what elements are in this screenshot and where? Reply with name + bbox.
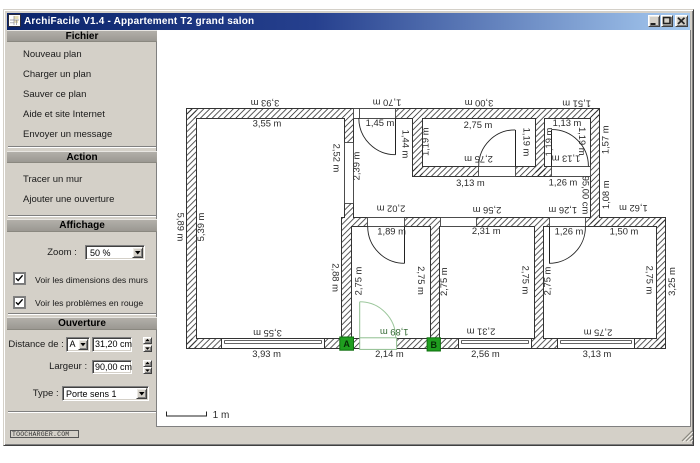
svg-text:1,62 m: 1,62 m [619, 203, 648, 214]
svg-text:2,02 m: 2,02 m [376, 204, 405, 215]
svg-text:5,39 m: 5,39 m [195, 212, 206, 241]
svg-text:2,56 m: 2,56 m [471, 348, 500, 359]
svg-text:1 m: 1 m [213, 410, 230, 421]
svg-text:2,56 m: 2,56 m [472, 205, 501, 216]
svg-text:1,19 m: 1,19 m [577, 127, 588, 156]
svg-text:1,50 m: 1,50 m [610, 226, 639, 237]
svg-text:2,75 m: 2,75 m [521, 266, 532, 295]
svg-text:2,31 m: 2,31 m [466, 327, 495, 338]
svg-text:1,19 m: 1,19 m [543, 127, 554, 156]
svg-text:1,57 m: 1,57 m [599, 125, 610, 154]
svg-text:2,31 m: 2,31 m [472, 225, 501, 236]
svg-text:1,26 m: 1,26 m [549, 177, 578, 188]
svg-text:1,70 m: 1,70 m [372, 98, 401, 109]
svg-text:1,19 m: 1,19 m [420, 127, 431, 156]
svg-text:2,75 m: 2,75 m [464, 154, 493, 165]
svg-text:3,13 m: 3,13 m [456, 177, 485, 188]
svg-text:1,26 m: 1,26 m [555, 226, 584, 237]
svg-text:3,93 m: 3,93 m [250, 98, 279, 109]
svg-text:2,75 m: 2,75 m [583, 328, 612, 339]
svg-text:B: B [430, 340, 437, 350]
svg-text:2,75 m: 2,75 m [438, 267, 449, 296]
svg-text:3,13 m: 3,13 m [583, 348, 612, 359]
svg-text:1,13 m: 1,13 m [551, 154, 580, 165]
svg-text:3,25 m: 3,25 m [666, 267, 677, 296]
svg-text:95,00 cm: 95,00 cm [581, 176, 592, 215]
svg-text:2,75 m: 2,75 m [645, 266, 656, 295]
svg-text:3,93 m: 3,93 m [252, 348, 281, 359]
svg-text:2,14 m: 2,14 m [375, 348, 404, 359]
svg-text:3,55 m: 3,55 m [253, 118, 282, 129]
svg-text:2,75 m: 2,75 m [353, 266, 364, 295]
svg-text:2,52 m: 2,52 m [332, 144, 343, 173]
svg-text:A: A [343, 339, 350, 349]
svg-text:1,19 m: 1,19 m [522, 128, 533, 157]
svg-text:2,88 m: 2,88 m [331, 263, 342, 292]
svg-text:3,00 m: 3,00 m [464, 98, 493, 109]
svg-text:2,75 m: 2,75 m [416, 266, 427, 295]
svg-text:2,39 m: 2,39 m [351, 151, 362, 180]
svg-text:3,55 m: 3,55 m [253, 328, 282, 339]
svg-text:1,45 m: 1,45 m [366, 117, 395, 128]
svg-text:1,89 m: 1,89 m [377, 225, 406, 236]
svg-text:2,75 m: 2,75 m [464, 119, 493, 130]
svg-text:1,08 m: 1,08 m [600, 180, 611, 209]
svg-text:5,89 m: 5,89 m [176, 213, 187, 242]
svg-text:1,26 m: 1,26 m [548, 205, 577, 216]
svg-text:1,51 m: 1,51 m [562, 99, 591, 110]
svg-text:1,44 m: 1,44 m [401, 130, 412, 159]
svg-text:1,89 m: 1,89 m [380, 327, 409, 338]
svg-text:2,75 m: 2,75 m [542, 266, 553, 295]
